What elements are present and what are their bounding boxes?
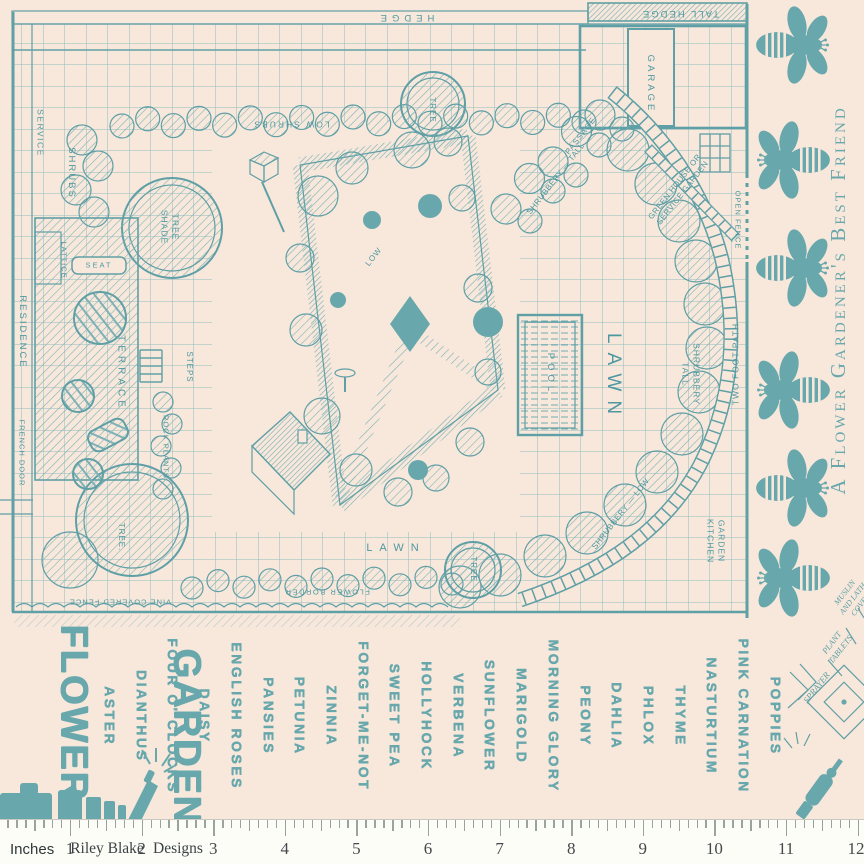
ruler-tick bbox=[88, 820, 89, 828]
ruler-tick bbox=[25, 820, 26, 828]
flower-name: SWEET PEA bbox=[387, 664, 403, 769]
plan-label: VINE COVERED FENCE bbox=[69, 597, 171, 606]
flower-name: MORNING GLORY bbox=[546, 639, 562, 792]
vine-covered-fence-line bbox=[16, 604, 448, 608]
ruler-tick bbox=[714, 820, 715, 836]
plan-label: TREE SHADE bbox=[159, 210, 180, 244]
ruler-tick bbox=[410, 820, 411, 828]
plan-label: ROCK PLANTS bbox=[161, 415, 170, 479]
plan-label: POOL bbox=[544, 353, 556, 395]
ruler-unit-label: Inches bbox=[10, 841, 54, 858]
ruler-tick bbox=[213, 820, 214, 836]
flower-name: NASTURTIUM bbox=[704, 657, 720, 775]
ruler-tick bbox=[70, 820, 71, 836]
bee-icon bbox=[754, 537, 830, 618]
flower-name: FORGET-ME-NOT bbox=[356, 641, 372, 791]
plan-label: FLOWER BORDER bbox=[284, 587, 370, 596]
ruler-tick bbox=[535, 820, 536, 831]
ruler-tick bbox=[607, 820, 608, 831]
lattice bbox=[35, 232, 61, 284]
ruler-tick bbox=[473, 820, 474, 828]
ruler-tick bbox=[231, 820, 232, 828]
ruler-tick bbox=[482, 820, 483, 828]
ruler-tick bbox=[34, 820, 35, 831]
bee-icon bbox=[754, 119, 830, 200]
ruler-tick bbox=[168, 820, 169, 828]
plan-label: GARDEN KITCHEN bbox=[705, 519, 726, 563]
ruler-tick bbox=[258, 820, 259, 828]
ruler-tick bbox=[79, 820, 80, 828]
ruler-tick bbox=[106, 820, 107, 831]
ruler-tick bbox=[303, 820, 304, 828]
plan-label: TREE. bbox=[116, 523, 126, 552]
plan-label: GREEN HOUSE OR SERVICE GARDEN bbox=[646, 152, 711, 228]
bee-icon bbox=[754, 349, 830, 430]
ruler-tick bbox=[312, 820, 313, 828]
plan-grid bbox=[12, 24, 748, 612]
ruler-tick bbox=[160, 820, 161, 828]
plan-label: LATTICE bbox=[59, 241, 68, 278]
trees bbox=[42, 72, 501, 598]
brand-name-suffix: Designs bbox=[153, 840, 203, 858]
ruler-number: 1 bbox=[66, 839, 75, 859]
ruler-tick bbox=[750, 820, 751, 831]
plan-label: FRENCH DOOR bbox=[17, 420, 26, 487]
sprayer-spray-marks bbox=[784, 732, 810, 748]
ruler-tick bbox=[339, 820, 340, 828]
ruler-number: 5 bbox=[352, 839, 361, 859]
ruler-tick bbox=[61, 820, 62, 828]
ruler-tick bbox=[616, 820, 617, 828]
ruler-tick bbox=[428, 820, 429, 836]
ruler-number: 11 bbox=[778, 839, 794, 859]
ruler-number: 3 bbox=[209, 839, 218, 859]
ruler-tick bbox=[518, 820, 519, 828]
ruler-tick bbox=[142, 820, 143, 836]
ruler-number: 9 bbox=[639, 839, 648, 859]
shrubbery-borders bbox=[61, 100, 728, 608]
bee-icon bbox=[756, 447, 832, 528]
ruler-tick bbox=[643, 820, 644, 836]
ruler-tick bbox=[16, 820, 17, 828]
ruler-tick bbox=[652, 820, 653, 828]
ruler-tick bbox=[598, 820, 599, 828]
sketch-annotation: SPRAYER bbox=[801, 670, 832, 706]
ruler-tick bbox=[831, 820, 832, 828]
ruler-number: 2 bbox=[137, 839, 146, 859]
ruler-tick bbox=[383, 820, 384, 828]
ruler-tick bbox=[562, 820, 563, 828]
ruler-tick bbox=[356, 820, 357, 836]
ruler-number: 6 bbox=[424, 839, 433, 859]
ruler-tick bbox=[571, 820, 572, 836]
ruler-tick bbox=[589, 820, 590, 828]
sundial bbox=[335, 369, 355, 392]
plan-label: TREE bbox=[468, 556, 478, 581]
ruler-tick bbox=[661, 820, 662, 828]
ruler-tick bbox=[777, 820, 778, 828]
ruler-tick bbox=[177, 820, 178, 831]
central-illustration bbox=[250, 128, 503, 514]
ruler-tick bbox=[133, 820, 134, 828]
ruler-tick bbox=[392, 820, 393, 831]
sketch-annotation: PLANT TABLETS bbox=[817, 626, 854, 665]
ruler-tick bbox=[697, 820, 698, 828]
ruler-number: 8 bbox=[567, 839, 576, 859]
ruler-tick bbox=[455, 820, 456, 828]
plan-label: SHRUBBERY TALL bbox=[680, 343, 701, 405]
cottage-sketch bbox=[252, 412, 330, 514]
ruler-tick bbox=[849, 820, 850, 828]
ruler-tick bbox=[544, 820, 545, 828]
ruler-tick bbox=[795, 820, 796, 828]
ruler-tick bbox=[249, 820, 250, 831]
plan-label: TERRACE bbox=[114, 335, 127, 411]
flower-name: DAHLIA bbox=[609, 682, 625, 750]
ruler-tick bbox=[491, 820, 492, 828]
collection-title-line2: GARDEN bbox=[165, 649, 208, 826]
plan-label: PASSAGE bbox=[563, 115, 598, 156]
pool bbox=[518, 315, 582, 435]
ruler-number: 7 bbox=[495, 839, 504, 859]
ruler-tick bbox=[446, 820, 447, 828]
ruler-tick bbox=[7, 820, 8, 828]
plan-label: RESIDENCE bbox=[16, 295, 28, 368]
flower-name: DIANTHUS bbox=[134, 670, 150, 762]
ruler-tick bbox=[580, 820, 581, 828]
ruler-tick bbox=[553, 820, 554, 828]
ruler-number: 12 bbox=[848, 839, 864, 859]
plan-label: SEAT bbox=[85, 260, 112, 269]
cold-frame-sketch bbox=[788, 608, 864, 739]
hand-sprayer-silhouette bbox=[794, 756, 847, 821]
ruler-tick bbox=[509, 820, 510, 828]
ruler-tick bbox=[186, 820, 187, 828]
ruler-tick bbox=[240, 820, 241, 828]
garden-cube-ornament bbox=[250, 152, 284, 232]
flower-name: PANSIES bbox=[261, 677, 277, 755]
flower-name: VERBENA bbox=[451, 673, 467, 759]
flower-names-list: ASTERDIANTHUSFOUR O' CLOCKSDAISYENGLISH … bbox=[0, 0, 864, 864]
ruler-tick bbox=[97, 820, 98, 828]
collection-title-line1: FLOWER bbox=[52, 625, 95, 802]
ruler-tick bbox=[500, 820, 501, 836]
hedge-top bbox=[12, 3, 747, 24]
ruler-tick bbox=[330, 820, 331, 828]
flower-name: PETUNIA bbox=[292, 677, 308, 756]
garage-block bbox=[580, 26, 746, 172]
ruler-tick bbox=[732, 820, 733, 828]
ruler-tick bbox=[419, 820, 420, 828]
ruler-number: 10 bbox=[706, 839, 723, 859]
ruler-tick bbox=[679, 820, 680, 831]
ruler-tick bbox=[276, 820, 277, 828]
ruler-tick bbox=[285, 820, 286, 836]
bee-motif-column bbox=[754, 4, 831, 618]
ruler-tick bbox=[365, 820, 366, 828]
seat-bench bbox=[72, 257, 126, 274]
plan-label: TALL HEDGE bbox=[641, 7, 719, 19]
plan-label: GARAGE bbox=[644, 55, 656, 114]
ruler-tick bbox=[625, 820, 626, 828]
brand-name: Riley Blake bbox=[70, 840, 144, 858]
flower-name: PINK CARNATION bbox=[736, 638, 752, 793]
plan-label: SHRUBBERY — LOW bbox=[590, 476, 652, 551]
ruler-tick bbox=[321, 820, 322, 831]
ruler-tick bbox=[822, 820, 823, 831]
flower-name: ASTER bbox=[102, 686, 118, 746]
plan-label: SERVICE bbox=[35, 109, 46, 157]
ruler-tick bbox=[634, 820, 635, 828]
ruler-number: 4 bbox=[281, 839, 290, 859]
ruler-tick bbox=[401, 820, 402, 828]
fabric-swatch: HEDGETALL HEDGELOW SHRUBSTREEGARAGESERVI… bbox=[0, 0, 864, 864]
ruler-tick bbox=[670, 820, 671, 828]
ruler-tick bbox=[437, 820, 438, 828]
ruler-tick bbox=[705, 820, 706, 828]
plan-label: OPEN FENCE bbox=[733, 191, 742, 250]
ruler-tick bbox=[294, 820, 295, 828]
flower-name: THYME bbox=[673, 685, 689, 747]
selvage-phrase: A Flower Gardener's Best Friend bbox=[826, 0, 860, 600]
plan-label: LOW SHRUBS bbox=[252, 119, 329, 130]
plan-label: LOW bbox=[364, 246, 385, 269]
plan-label: HEDGE bbox=[376, 11, 435, 23]
plan-labels-layer: HEDGETALL HEDGELOW SHRUBSTREEGARAGESERVI… bbox=[0, 0, 864, 864]
bee-icon bbox=[756, 227, 832, 308]
ruler-tick bbox=[267, 820, 268, 828]
steps bbox=[140, 350, 162, 382]
two-foot-path bbox=[520, 92, 736, 600]
ruler-tick bbox=[43, 820, 44, 828]
garden-frame bbox=[700, 134, 730, 172]
ruler-tick bbox=[222, 820, 223, 828]
garden-plan-drawing bbox=[0, 0, 864, 864]
ruler-tick bbox=[813, 820, 814, 828]
flower-name: HOLLYHOCK bbox=[419, 661, 435, 771]
ruler-tick bbox=[52, 820, 53, 828]
ruler-tick bbox=[840, 820, 841, 828]
ruler-tick bbox=[688, 820, 689, 828]
plan-label: SHRUBS bbox=[65, 147, 77, 199]
plan-borders bbox=[12, 4, 748, 618]
bee-icon bbox=[756, 4, 832, 85]
ruler-tick bbox=[195, 820, 196, 828]
ruler-tick bbox=[804, 820, 805, 828]
ruler-tick bbox=[526, 820, 527, 828]
flower-name: POPPIES bbox=[768, 677, 784, 756]
ruler-tick bbox=[347, 820, 348, 828]
ruler-tick bbox=[204, 820, 205, 828]
ruler-tick bbox=[374, 820, 375, 828]
flower-name: SUNFLOWER bbox=[482, 660, 498, 773]
plan-label: SHRUBBERY — TALL bbox=[525, 141, 587, 217]
plan-label: TREE bbox=[427, 97, 437, 122]
ruler-tick bbox=[786, 820, 787, 836]
ruler-tick bbox=[124, 820, 125, 828]
ruler-tick bbox=[464, 820, 465, 831]
ruler-tick bbox=[858, 820, 859, 836]
flower-name: MARIGOLD bbox=[514, 668, 530, 764]
plan-label: STEPS bbox=[184, 351, 194, 382]
selvage-ruler: Inches Riley Blake Designs 1234567891011… bbox=[0, 819, 864, 864]
ruler-tick bbox=[741, 820, 742, 828]
flower-name: ENGLISH ROSES bbox=[229, 642, 245, 790]
plan-label: LAWN bbox=[366, 542, 425, 556]
residence-terrace bbox=[0, 218, 162, 514]
flower-name: ZINNIA bbox=[324, 685, 340, 747]
plan-label: TWO FOOT PATH bbox=[731, 323, 742, 405]
ruler-tick bbox=[723, 820, 724, 828]
ruler-tick bbox=[768, 820, 769, 828]
ruler-tick bbox=[759, 820, 760, 828]
plan-label: LAWN bbox=[601, 333, 625, 423]
ruler-tick bbox=[151, 820, 152, 828]
flower-name: PEONY bbox=[578, 685, 594, 747]
ruler-tick bbox=[115, 820, 116, 828]
flower-name: PHLOX bbox=[641, 686, 657, 747]
